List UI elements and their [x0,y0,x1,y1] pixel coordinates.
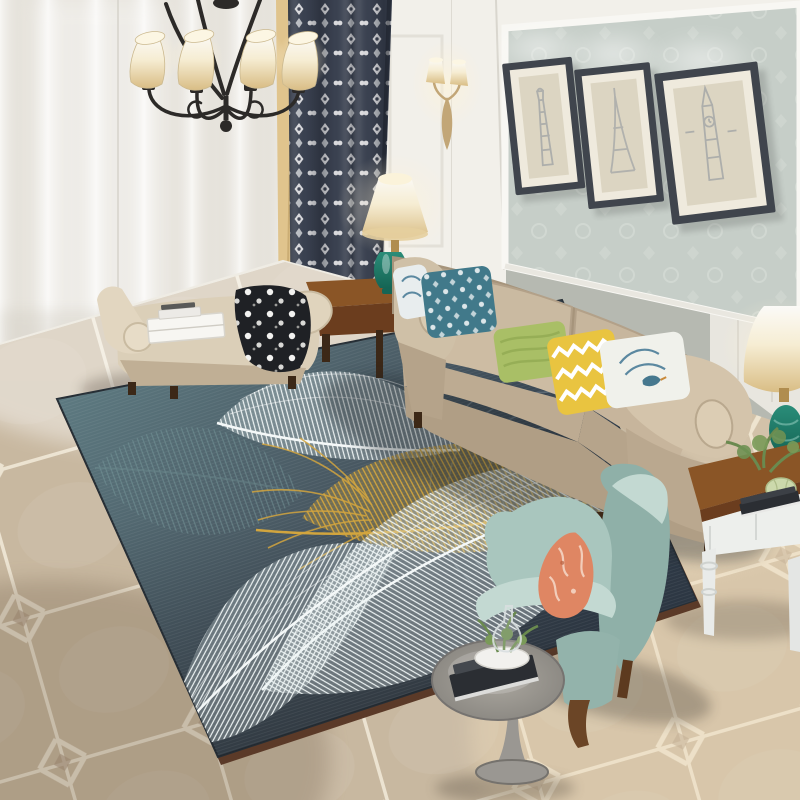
armchair-skirt [556,631,620,709]
scene-canvas: Bright living room with a dark teal feat… [0,0,800,800]
picture-frame-clocktower [654,60,784,233]
living-room-photo: Bright living room with a dark teal feat… [0,0,800,800]
right-table-leg [702,548,716,636]
sofa-pillow-white-botanical [599,330,692,409]
sofa-pillow-teal-damask [420,265,498,339]
